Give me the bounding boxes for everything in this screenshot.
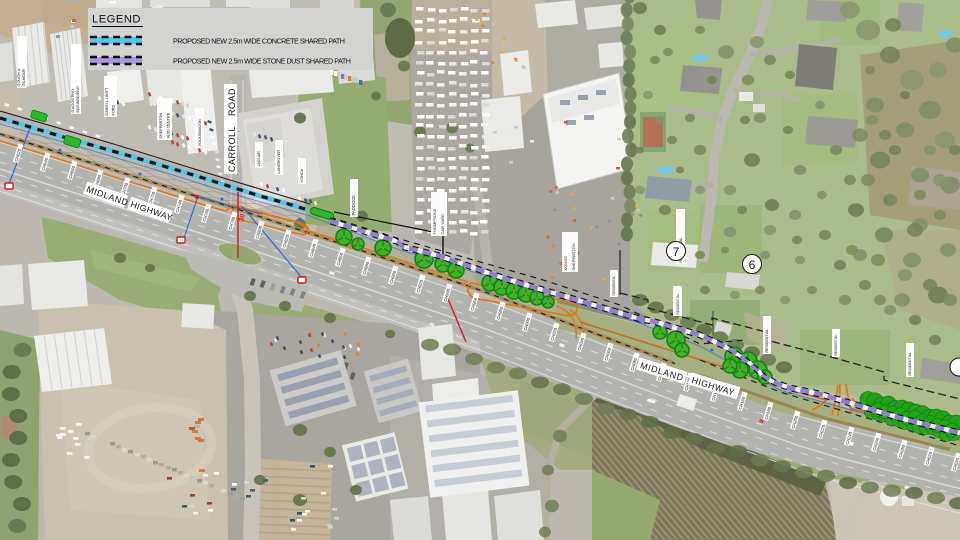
svg-text:RESIDENTAL: RESIDENTAL [612, 275, 616, 295]
svg-text:RESIDENTIAL: RESIDENTIAL [765, 329, 769, 353]
svg-text:VOLKSWAGON: VOLKSWAGON [198, 119, 202, 147]
svg-text:THOMPSONS: THOMPSONS [432, 208, 437, 234]
svg-text:RESIDENTIAL: RESIDENTIAL [834, 334, 838, 355]
svg-text:HONDA: HONDA [300, 168, 304, 182]
svg-text:DARRYL TWITT: DARRYL TWITT [105, 87, 109, 115]
svg-text:CARROLL: CARROLL [227, 126, 237, 172]
svg-text:JAGUAR: JAGUAR [257, 151, 261, 167]
svg-text:RESIDENTIAL: RESIDENTIAL [908, 352, 912, 376]
svg-text:ROAD: ROAD [227, 88, 237, 116]
svg-text:PROPOSED NEW 2.5m WIDE CONCRET: PROPOSED NEW 2.5m WIDE CONCRETE SHARED P… [173, 37, 345, 46]
svg-text:AUDI CENTRE: AUDI CENTRE [166, 112, 170, 138]
svg-text:SHEPPARTON: SHEPPARTON [571, 243, 576, 270]
svg-text:7: 7 [673, 245, 680, 259]
svg-text:GOUGH &: GOUGH & [17, 68, 21, 86]
svg-text:RESIDENTIAL: RESIDENTIAL [676, 293, 680, 314]
svg-text:PROPOSED NEW 2.5m WIDE STONE D: PROPOSED NEW 2.5m WIDE STONE DUST SHARED… [173, 57, 351, 66]
svg-text:FORD: FORD [112, 104, 116, 115]
svg-text:6: 6 [749, 258, 756, 272]
svg-text:LANDROVER: LANDROVER [277, 150, 281, 174]
svg-text:CAR YARD: CAR YARD [440, 214, 445, 234]
svg-text:SHEPPARTON: SHEPPARTON [159, 113, 163, 139]
svg-text:KONGS: KONGS [563, 256, 568, 271]
svg-text:ENGINEERING: ENGINEERING [76, 86, 80, 113]
svg-text:GILMOUR: GILMOUR [22, 69, 26, 87]
svg-text:LEGEND: LEGEND [92, 14, 141, 26]
svg-text:PADDOCK: PADDOCK [351, 195, 356, 216]
svg-text:D'AGOSTINO: D'AGOSTINO [71, 89, 75, 113]
